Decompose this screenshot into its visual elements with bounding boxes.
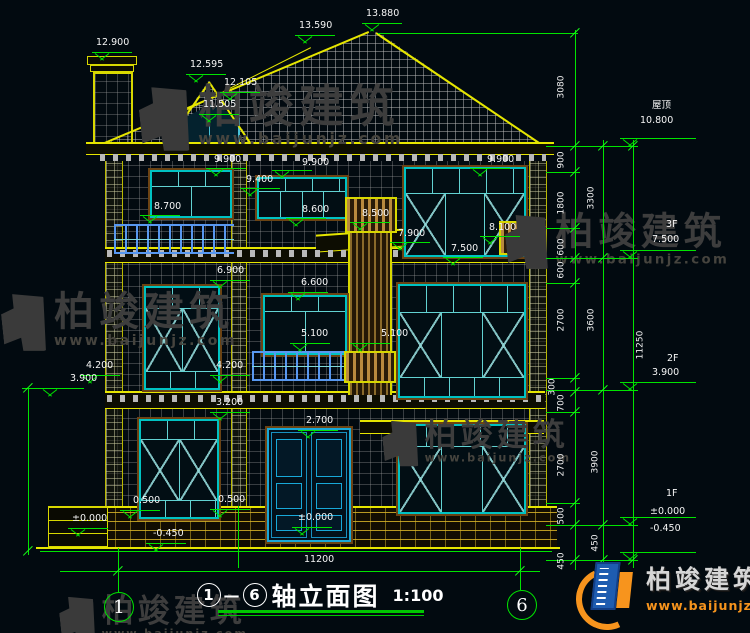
window-sash [265, 312, 305, 353]
level-mark [620, 517, 696, 518]
elevation-label: 11200 [304, 555, 334, 565]
elevation-label: 5.100 [381, 329, 408, 339]
dim-text-vertical: 700 [558, 394, 567, 411]
title-underline-thin [218, 615, 424, 616]
dim-text-vertical: 600 [558, 238, 567, 255]
dimension-line [546, 258, 638, 259]
dimension-line [238, 506, 239, 568]
elevation-label: 8.500 [362, 209, 389, 219]
title-text: 轴立面图 [272, 577, 380, 613]
elevation-label: -0.450 [153, 529, 184, 539]
level-mark [206, 168, 246, 169]
level-mark [240, 188, 280, 189]
elevation-label: 3F [666, 220, 678, 230]
window-sash-casement [482, 313, 524, 378]
level-mark [286, 218, 326, 219]
dimension-line [378, 33, 578, 34]
level-mark [220, 92, 260, 93]
watermark-url: www.baijunjz.com [425, 452, 571, 465]
window-sash-casement [400, 313, 441, 378]
elevation-label: 9.900 [214, 155, 241, 165]
window-sash [259, 192, 280, 217]
watermark-url: www.baijunjz.com [198, 131, 403, 149]
title-axis-circle-start: 1 [197, 583, 221, 607]
level-mark [443, 257, 483, 258]
balcony-rail-3f-left [114, 224, 234, 254]
axis-bubble-1-label: 1 [113, 597, 124, 618]
window-sash [280, 192, 302, 217]
dim-text-vertical: 3900 [592, 451, 601, 474]
window-sash-casement [406, 194, 445, 255]
watermark-logo-icon [381, 418, 421, 469]
dimension-line [633, 140, 634, 568]
level-mark [290, 343, 330, 344]
watermark-url: www.baijunjz.com [555, 252, 729, 267]
dimension-line [546, 146, 638, 147]
level-mark [620, 382, 696, 383]
level-mark [68, 528, 108, 529]
elevation-label: 8.700 [154, 202, 181, 212]
window-bottom-row [400, 377, 524, 396]
level-mark [92, 52, 132, 53]
elevation-label: ±0.000 [650, 507, 685, 517]
window-sash-casement [141, 440, 179, 501]
level-mark [210, 375, 250, 376]
ground-line [36, 547, 560, 549]
chimney-cap [87, 56, 137, 65]
drawing-title: 1 — 6 轴立面图 1:100 [170, 577, 470, 613]
elevation-label: 8.600 [302, 205, 329, 215]
company-url: www.baijunjz.com [646, 598, 750, 613]
window-transom [400, 286, 524, 313]
dimension-line [60, 571, 540, 572]
dimension-line [546, 525, 638, 526]
window-transom [265, 297, 345, 312]
watermark-text-col: 柏竣建筑www.baijunjz.com [555, 214, 729, 267]
window-sash [441, 313, 483, 378]
level-mark [288, 292, 328, 293]
level-mark [298, 430, 338, 431]
level-mark [120, 510, 160, 511]
dim-text-vertical: 11250 [637, 331, 646, 360]
elevation-label: 7.500 [652, 235, 679, 245]
dim-text-vertical: 3080 [558, 76, 567, 99]
watermark-logo-icon [0, 291, 49, 355]
elevation-label: 13.590 [299, 21, 332, 31]
entry-double-door [267, 428, 351, 542]
elevation-label: 12.900 [96, 38, 129, 48]
company-name: 柏竣建筑 [646, 560, 750, 596]
watermark-text-col: 柏竣建筑www.baijunjz.com [425, 420, 571, 465]
window-transom [141, 421, 217, 440]
watermark-url: www.baijunjz.com [54, 333, 237, 349]
elevation-label: 4.200 [86, 361, 113, 371]
level-mark [292, 527, 332, 528]
window-transom [152, 172, 230, 187]
level-mark [350, 222, 390, 223]
level-mark [140, 215, 180, 216]
title-scale: 1:100 [393, 586, 444, 605]
dim-text-vertical: 3300 [588, 187, 597, 210]
elevation-label: 12.105 [224, 78, 257, 88]
door-panel [316, 483, 342, 509]
level-mark [199, 114, 239, 115]
dimension-line [546, 390, 638, 391]
elevation-label: 0.500 [133, 496, 160, 506]
level-mark [295, 35, 335, 36]
elevation-label: 3.900 [652, 368, 679, 378]
dimension-line [575, 30, 576, 570]
balcony-rail-2f-center [252, 351, 354, 381]
level-mark [272, 170, 312, 171]
level-mark [390, 242, 430, 243]
watermark-text-col: 柏竣建筑www.baijunjz.com [54, 293, 237, 349]
elevation-label: 7.900 [398, 229, 425, 239]
watermark-name: 柏竣建筑 [555, 214, 729, 250]
level-mark [470, 168, 510, 169]
elevation-label: 10.800 [640, 116, 673, 126]
elevation-label: 6.600 [301, 278, 328, 288]
watermark-logo-icon [58, 594, 98, 633]
elevation-label: 5.100 [301, 329, 328, 339]
axis-bubble-6: 6 [507, 590, 537, 620]
dim-text-vertical: 450 [558, 552, 567, 569]
dim-text-vertical: 900 [558, 151, 567, 168]
elevation-label: 6.900 [217, 266, 244, 276]
company-logo-icon [576, 560, 642, 626]
dimension-line [28, 388, 29, 555]
window-transom [406, 169, 524, 194]
watermark-logo-icon [137, 84, 193, 156]
title-underline-thick [218, 610, 424, 613]
elevation-label: 9.400 [246, 175, 273, 185]
elevation-label: 2.700 [306, 416, 333, 426]
level-mark [210, 412, 250, 413]
elevation-label: 11.505 [203, 100, 236, 110]
window-2f-right [398, 284, 526, 398]
window-sash-casement [179, 440, 218, 501]
watermark: 柏竣建筑www.baijunjz.com [506, 214, 729, 271]
watermark-url: www.baijunjz.com [102, 628, 248, 633]
dim-text-vertical: 1800 [558, 192, 567, 215]
elevation-label: 9.900 [487, 155, 514, 165]
dim-text-vertical: 3600 [588, 309, 597, 332]
level-mark [620, 138, 696, 139]
title-axis-circle-end: 6 [243, 583, 267, 607]
axis-bubble-1: 1 [104, 592, 134, 622]
elevation-label: 3.200 [216, 398, 243, 408]
level-mark [210, 280, 250, 281]
dim-text-vertical: 450 [592, 534, 601, 551]
door-panel [276, 483, 302, 509]
elevation-label: 3.900 [70, 374, 97, 384]
company-logo: 柏竣建筑 www.baijunjz.com [576, 560, 750, 626]
level-mark [620, 552, 696, 553]
door-panel [276, 439, 302, 477]
level-mark [620, 250, 696, 251]
elevation-label: 13.880 [366, 9, 399, 19]
elevation-label: 9.900 [302, 158, 329, 168]
window-sash [191, 187, 231, 216]
elevation-label: 8.100 [489, 223, 516, 233]
elevation-label: 1F [666, 489, 678, 499]
dim-text-vertical: 2700 [558, 454, 567, 477]
elevation-label: ±0.000 [72, 514, 107, 524]
elevation-label: ±0.000 [298, 513, 333, 523]
elevation-label: 4.200 [216, 361, 243, 371]
watermark-text-col: 柏竣建筑www.baijunjz.com [198, 86, 403, 149]
title-axis-dash: — [224, 586, 240, 605]
axis-bubble-6-label: 6 [516, 595, 527, 616]
mini-balcony-2f-column [344, 351, 396, 383]
dim-text-vertical: 2700 [558, 309, 567, 332]
dim-text-vertical: 600 [558, 261, 567, 278]
cad-canvas: 柏竣建筑www.baijunjz.com柏竣建筑www.baijunjz.com… [0, 0, 750, 633]
dim-text-vertical: 300 [549, 378, 558, 395]
elevation-label: 屋顶 [652, 101, 671, 111]
watermark: 柏竣建筑www.baijunjz.com [383, 420, 571, 468]
level-mark [480, 236, 520, 237]
watermark: 柏竣建筑www.baijunjz.com [2, 293, 237, 353]
elevation-label: 12.595 [190, 60, 223, 70]
level-mark [350, 343, 390, 344]
chimney-neck [90, 65, 134, 72]
dimension-line [603, 140, 604, 568]
watermark-name: 柏竣建筑 [54, 293, 237, 331]
watermark: 柏竣建筑www.baijunjz.com [140, 86, 403, 153]
dimension-line [40, 551, 552, 552]
dim-text-vertical: 500 [558, 507, 567, 524]
window-bottom-row [146, 371, 218, 388]
elevation-label: 7.500 [451, 244, 478, 254]
elevation-label: 2F [667, 354, 679, 364]
watermark-name: 柏竣建筑 [425, 420, 571, 450]
level-mark [146, 543, 186, 544]
door-panel [316, 439, 342, 477]
elevation-label: -0.450 [650, 524, 681, 534]
level-mark [186, 74, 226, 75]
elevation-label: 0.500 [218, 495, 245, 505]
level-mark [362, 23, 402, 24]
level-mark [210, 509, 250, 510]
level-mark [40, 388, 84, 389]
